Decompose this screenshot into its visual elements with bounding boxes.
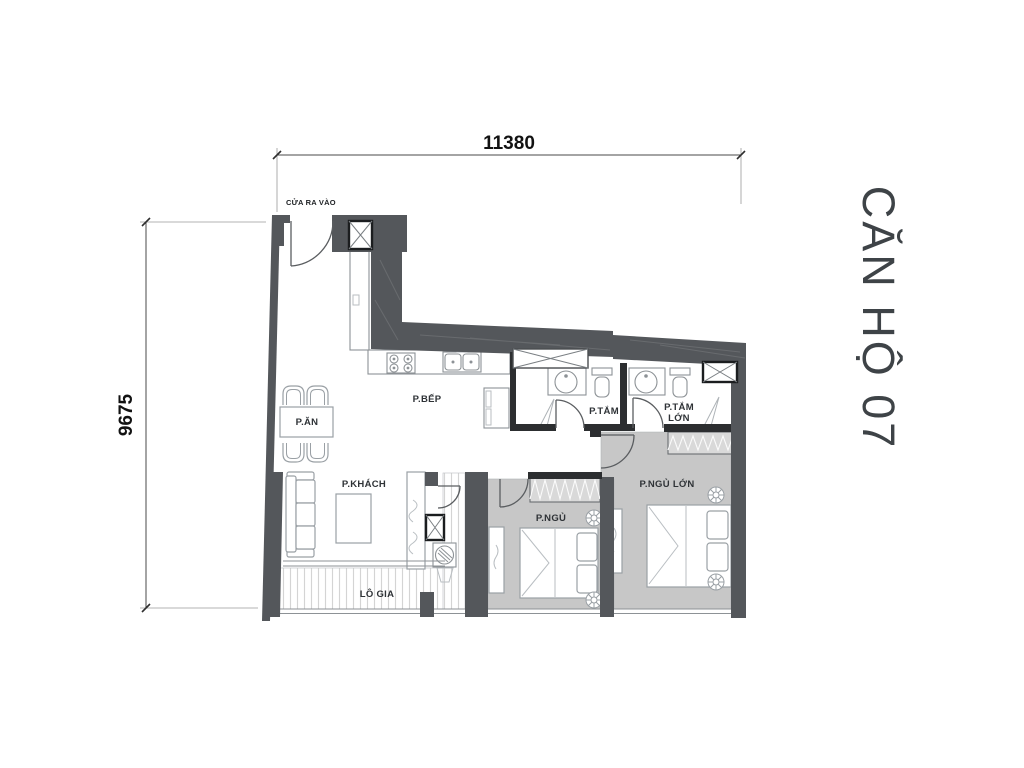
- dimension-width-label: 11380: [483, 133, 535, 154]
- room-label-loggia: LÔ GIA: [360, 588, 395, 600]
- room-label-living: P.KHÁCH: [342, 479, 386, 490]
- entrance-label: CỬA RA VÀO: [286, 198, 336, 207]
- nightstand-plant: [586, 592, 602, 608]
- nightstand-plant: [586, 510, 602, 526]
- dining-chair: [283, 443, 304, 462]
- nightstand-plant: [708, 487, 724, 503]
- dimension-width: 11380: [273, 133, 745, 212]
- shaft-box: [349, 221, 372, 249]
- fridge: [484, 388, 509, 428]
- room-label-bathroom: P.TẮM: [589, 406, 619, 417]
- floor-plan-page: 11380 9675 CỬA RA VÀO P.ĂN P.BẾP P.KHÁCH…: [0, 0, 1024, 768]
- room-label-dining: P.ĂN: [296, 417, 319, 428]
- shower-screen-large: [704, 397, 719, 426]
- dining-chair: [307, 386, 328, 405]
- room-label-bathroom-large-2: LỚN: [668, 412, 690, 424]
- floor-plan-canvas: 11380 9675 CỬA RA VÀO P.ĂN P.BẾP P.KHÁCH…: [0, 0, 1024, 768]
- tv-console: [407, 472, 425, 569]
- room-label-bathroom-large: P.TẮM: [664, 402, 694, 413]
- shower-screen: [540, 399, 554, 426]
- room-label-kitchen: P.BẾP: [413, 394, 442, 405]
- bathroom-sink: [548, 368, 586, 395]
- sofa: [286, 472, 315, 557]
- bedroom-bench: [489, 527, 504, 593]
- dimension-height-label: 9675: [116, 393, 137, 436]
- unit-title: CĂN HỘ 07: [853, 186, 904, 451]
- bed: [520, 528, 598, 598]
- dining-chair: [307, 443, 328, 462]
- bathroom-large-door: [633, 398, 663, 428]
- vent-box: [513, 349, 588, 368]
- kitchen-sink: [443, 349, 481, 372]
- coffee-table: [336, 494, 371, 543]
- shaft-box: [426, 515, 444, 540]
- dining-chair: [283, 386, 304, 405]
- wardrobe-bedroom-large: [668, 432, 733, 454]
- dimension-height: 9675: [116, 218, 266, 612]
- room-label-bedroom: P.NGỦ: [536, 512, 566, 524]
- shaft-box: [703, 362, 737, 382]
- toilet: [592, 368, 612, 397]
- entrance-door: [291, 221, 333, 266]
- bathroom-large-sink: [629, 368, 665, 395]
- toilet-large: [670, 368, 690, 397]
- room-label-bedroom-large: P.NGỦ LỚN: [640, 478, 695, 490]
- nightstand-plant: [708, 574, 724, 590]
- kitchen-stove: [387, 353, 415, 373]
- bathroom-door: [556, 400, 584, 428]
- wardrobe-bedroom: [530, 477, 600, 502]
